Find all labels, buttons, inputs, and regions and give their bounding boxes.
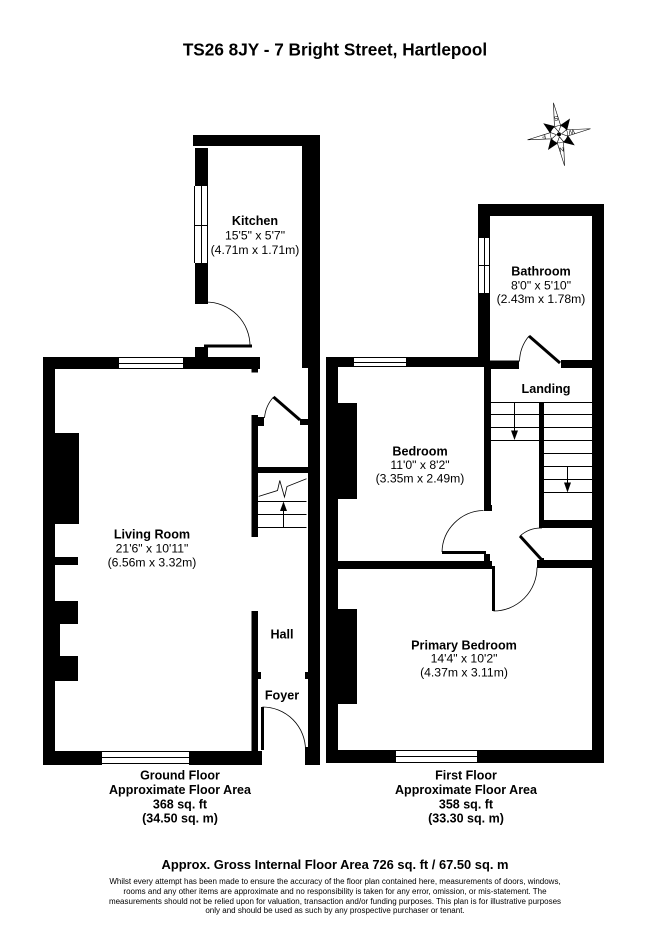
svg-text:Bedroom: Bedroom bbox=[392, 445, 447, 459]
svg-text:15'5" x 5'7": 15'5" x 5'7" bbox=[225, 229, 285, 243]
svg-text:Living Room: Living Room bbox=[114, 528, 190, 542]
svg-text:Primary Bedroom: Primary Bedroom bbox=[411, 639, 517, 653]
svg-text:(3.35m x 2.49m): (3.35m x 2.49m) bbox=[376, 472, 465, 486]
svg-text:Approximate Floor Area: Approximate Floor Area bbox=[395, 783, 538, 797]
svg-text:Kitchen: Kitchen bbox=[232, 214, 278, 228]
svg-text:Approximate Floor Area: Approximate Floor Area bbox=[109, 783, 252, 797]
svg-text:(33.30 sq. m): (33.30 sq. m) bbox=[428, 812, 504, 826]
svg-text:Approx. Gross Internal Floor A: Approx. Gross Internal Floor Area 726 sq… bbox=[162, 857, 509, 872]
svg-text:8'0" x 5'10": 8'0" x 5'10" bbox=[511, 279, 571, 293]
svg-text:(34.50 sq. m): (34.50 sq. m) bbox=[142, 812, 218, 826]
svg-text:358 sq. ft: 358 sq. ft bbox=[439, 798, 494, 812]
svg-text:Ground Floor: Ground Floor bbox=[140, 769, 220, 783]
svg-text:Landing: Landing bbox=[522, 382, 571, 396]
svg-text:(4.37m x 3.11m): (4.37m x 3.11m) bbox=[420, 666, 508, 680]
svg-text:Foyer: Foyer bbox=[265, 689, 299, 703]
svg-text:(6.56m x 3.32m): (6.56m x 3.32m) bbox=[108, 556, 197, 570]
svg-text:Hall: Hall bbox=[270, 628, 293, 642]
svg-text:measurements should not be rel: measurements should not be relied upon f… bbox=[109, 897, 561, 906]
svg-text:Whilst every attempt has been: Whilst every attempt has been made to en… bbox=[109, 877, 560, 886]
svg-text:First Floor: First Floor bbox=[435, 769, 497, 783]
svg-text:11'0" x 8'2": 11'0" x 8'2" bbox=[390, 458, 449, 472]
svg-text:368 sq. ft: 368 sq. ft bbox=[153, 798, 208, 812]
svg-text:Bathroom: Bathroom bbox=[511, 265, 570, 279]
svg-text:21'6" x 10'11": 21'6" x 10'11" bbox=[116, 542, 189, 556]
svg-text:(2.43m x 1.78m): (2.43m x 1.78m) bbox=[497, 292, 586, 306]
svg-text:rooms and any other items are: rooms and any other items are approximat… bbox=[123, 887, 547, 896]
svg-text:TS26 8JY - 7 Bright Street, Ha: TS26 8JY - 7 Bright Street, Hartlepool bbox=[183, 40, 487, 60]
svg-text:(4.71m x 1.71m): (4.71m x 1.71m) bbox=[211, 243, 300, 257]
svg-text:only and should be used as suc: only and should be used as such by any p… bbox=[205, 906, 464, 915]
svg-text:14'4" x 10'2": 14'4" x 10'2" bbox=[431, 652, 498, 666]
